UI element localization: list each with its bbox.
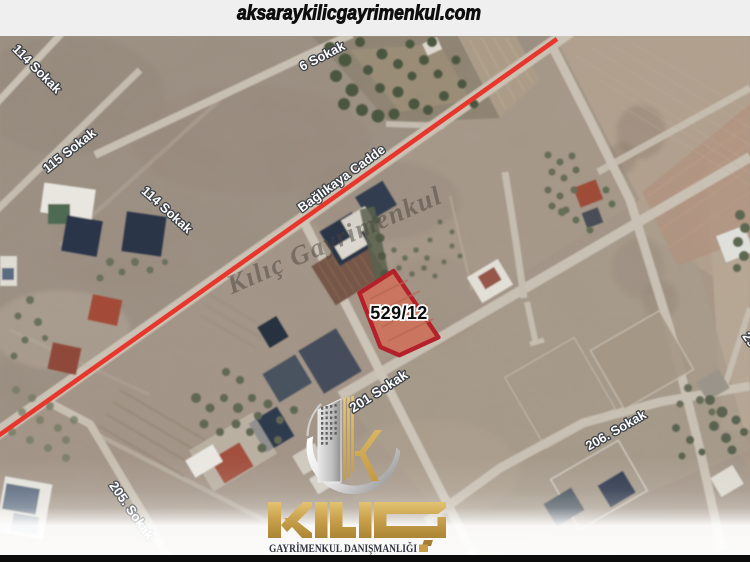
svg-text:aksaraykilicgayrimenkul.com: aksaraykilicgayrimenkul.com: [237, 3, 481, 25]
svg-text:GAYRİMENKUL DANIŞMANLIĞI: GAYRİMENKUL DANIŞMANLIĞI: [269, 541, 417, 555]
svg-text:529/12: 529/12: [370, 303, 427, 323]
